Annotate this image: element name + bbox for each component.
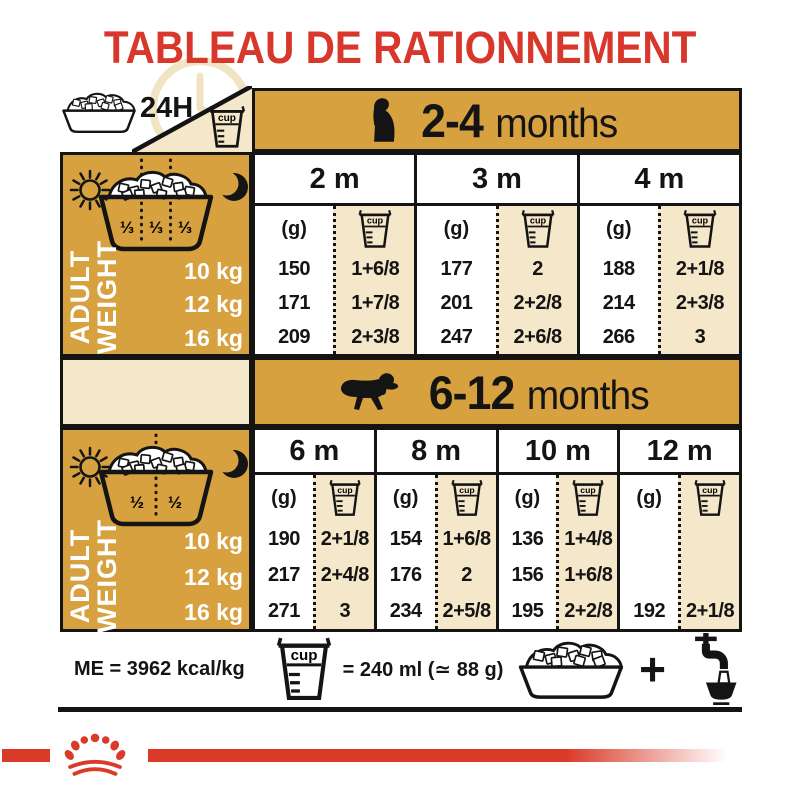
cup-value: 2+1/8 xyxy=(661,252,739,286)
cup-value: 2+1/8 xyxy=(681,593,739,629)
portion-fraction: ⅓ xyxy=(178,218,192,237)
month-column-12m: 12 m (g) 192 2+1/8 xyxy=(617,430,739,629)
weight-rows: 10 kg 12 kg 16 kg xyxy=(155,524,247,631)
grams-value: 217 xyxy=(255,557,313,593)
grams-value: 234 xyxy=(377,593,435,629)
cup-value: 2 xyxy=(499,252,577,286)
month-column-2m: 2 m (g) 150 171 209 1+6/8 1+7/8 2+3/8 xyxy=(255,155,414,354)
month-column-10m: 10 m (g) 136 156 195 1+4/8 1+6/8 2+2/8 xyxy=(496,430,618,629)
weight-label: 16 kg xyxy=(155,322,247,355)
grams-value: 176 xyxy=(377,557,435,593)
cup-value: 2 xyxy=(438,557,496,593)
weight-label: 16 kg xyxy=(155,595,247,631)
ration-grid-1: 2 m (g) 150 171 209 1+6/8 1+7/8 2+3/8 3 … xyxy=(252,152,742,357)
adult-weight-label: ADULTWEIGHT xyxy=(67,235,151,359)
month-label: 10 m xyxy=(499,430,618,475)
food-bowl-icon xyxy=(511,638,631,700)
cup-icon xyxy=(358,209,392,249)
plus-icon: + xyxy=(639,646,666,692)
cup-equivalence: = 240 ml (≃ 88 g) xyxy=(343,657,504,682)
feeding-panel-1: ⅓ ⅓ ⅓ ADULTWEIGHT 10 kg 12 kg 16 kg xyxy=(60,152,252,357)
grams-unit: (g) xyxy=(255,475,313,521)
portion-fraction: ⅓ xyxy=(149,218,163,237)
age-word: months xyxy=(495,100,617,147)
grams-value: 201 xyxy=(417,286,495,320)
weight-label: 10 kg xyxy=(155,524,247,560)
cup-value: 1+4/8 xyxy=(559,521,617,557)
weight-label: 12 kg xyxy=(155,288,247,321)
age-range-group: 2-4 months xyxy=(421,93,617,148)
ration-grid-2: 6 m (g) 190 217 271 2+1/8 2+4/8 3 8 m xyxy=(252,427,742,632)
brand-bar-left xyxy=(2,749,50,762)
cup-icon xyxy=(572,479,604,517)
bowl-24h-icon xyxy=(58,90,140,134)
grams-value: 171 xyxy=(255,286,333,320)
month-label: 6 m xyxy=(255,430,374,475)
cup-icon xyxy=(694,479,726,517)
spaniel-dog-icon xyxy=(339,371,405,413)
month-label: 3 m xyxy=(417,155,576,206)
cup-value: 1+7/8 xyxy=(336,286,414,320)
puppy-dog-icon xyxy=(371,96,398,144)
grams-value xyxy=(620,557,678,593)
grams-unit: (g) xyxy=(620,475,678,521)
adult-weight-label: ADULTWEIGHT xyxy=(67,514,151,638)
grams-unit: (g) xyxy=(417,206,495,252)
cup-value: 3 xyxy=(316,593,374,629)
age-range: 6-12 xyxy=(429,365,515,420)
grams-unit: (g) xyxy=(377,475,435,521)
cup-icon xyxy=(208,105,246,149)
cup-value xyxy=(681,557,739,593)
grams-value: 266 xyxy=(580,320,658,354)
grams-value: 192 xyxy=(620,593,678,629)
portion-fraction: ½ xyxy=(168,493,182,512)
cup-value: 1+6/8 xyxy=(336,252,414,286)
month-label: 4 m xyxy=(580,155,739,206)
month-label: 12 m xyxy=(620,430,739,475)
energy-label: ME = 3962 kcal/kg xyxy=(74,658,245,681)
grams-value: 190 xyxy=(255,521,313,557)
month-column-4m: 4 m (g) 188 214 266 2+1/8 2+3/8 3 xyxy=(577,155,739,354)
age-word: months xyxy=(527,372,649,419)
grams-value: 209 xyxy=(255,320,333,354)
feeding-panel-2: ½ ½ ADULTWEIGHT 10 kg 12 kg 16 kg xyxy=(60,427,252,632)
grams-value: 247 xyxy=(417,320,495,354)
weight-rows: 10 kg 12 kg 16 kg xyxy=(155,255,247,355)
cup-value xyxy=(681,521,739,557)
grams-value: 188 xyxy=(580,252,658,286)
cup-icon xyxy=(329,479,361,517)
grams-value: 156 xyxy=(499,557,557,593)
grams-value: 271 xyxy=(255,593,313,629)
cup-value: 2+6/8 xyxy=(499,320,577,354)
cup-icon xyxy=(683,209,717,249)
ration-table-sheet: TABLEAU DE RATIONNEMENT 24H 2-4 months xyxy=(0,0,800,800)
divider-rule xyxy=(58,707,742,712)
cup-icon xyxy=(521,209,555,249)
age-range-group: 6-12 months xyxy=(429,365,649,420)
age-range: 2-4 xyxy=(421,93,483,148)
royal-canin-paw-logo xyxy=(55,731,135,779)
cup-value: 2+3/8 xyxy=(661,286,739,320)
cup-value: 3 xyxy=(661,320,739,354)
grams-value: 177 xyxy=(417,252,495,286)
cup-icon xyxy=(451,479,483,517)
month-label: 2 m xyxy=(255,155,414,206)
month-column-3m: 3 m (g) 177 201 247 2 2+2/8 2+6/8 xyxy=(414,155,576,354)
cup-value: 1+6/8 xyxy=(438,521,496,557)
legend-row: ME = 3962 kcal/kg = 240 ml (≃ 88 g) + xyxy=(60,632,742,706)
cup-value: 2+2/8 xyxy=(499,286,577,320)
cup-value: 2+4/8 xyxy=(316,557,374,593)
water-faucet-icon xyxy=(672,633,738,705)
brand-bar xyxy=(148,749,745,762)
age-header-1: 2-4 months xyxy=(252,88,742,152)
grams-unit: (g) xyxy=(499,475,557,521)
spacer-box xyxy=(60,357,252,427)
grams-unit: (g) xyxy=(255,206,333,252)
grams-value: 195 xyxy=(499,593,557,629)
cup-value: 2+1/8 xyxy=(316,521,374,557)
month-column-8m: 8 m (g) 154 176 234 1+6/8 2 2+5/8 xyxy=(374,430,496,629)
month-label: 8 m xyxy=(377,430,496,475)
grams-value: 136 xyxy=(499,521,557,557)
grams-value: 154 xyxy=(377,521,435,557)
cup-value: 2+2/8 xyxy=(559,593,617,629)
cup-icon xyxy=(275,636,333,702)
cup-value: 2+5/8 xyxy=(438,593,496,629)
weight-label: 10 kg xyxy=(155,255,247,288)
page-title: TABLEAU DE RATIONNEMENT xyxy=(0,22,800,74)
cup-value: 1+6/8 xyxy=(559,557,617,593)
cup-value: 2+3/8 xyxy=(336,320,414,354)
grams-value: 150 xyxy=(255,252,333,286)
age-header-2: 6-12 months xyxy=(252,357,742,427)
weight-label: 12 kg xyxy=(155,560,247,596)
grams-unit: (g) xyxy=(580,206,658,252)
portion-fraction: ½ xyxy=(130,493,144,512)
grams-value xyxy=(620,521,678,557)
month-column-6m: 6 m (g) 190 217 271 2+1/8 2+4/8 3 xyxy=(255,430,374,629)
grams-value: 214 xyxy=(580,286,658,320)
